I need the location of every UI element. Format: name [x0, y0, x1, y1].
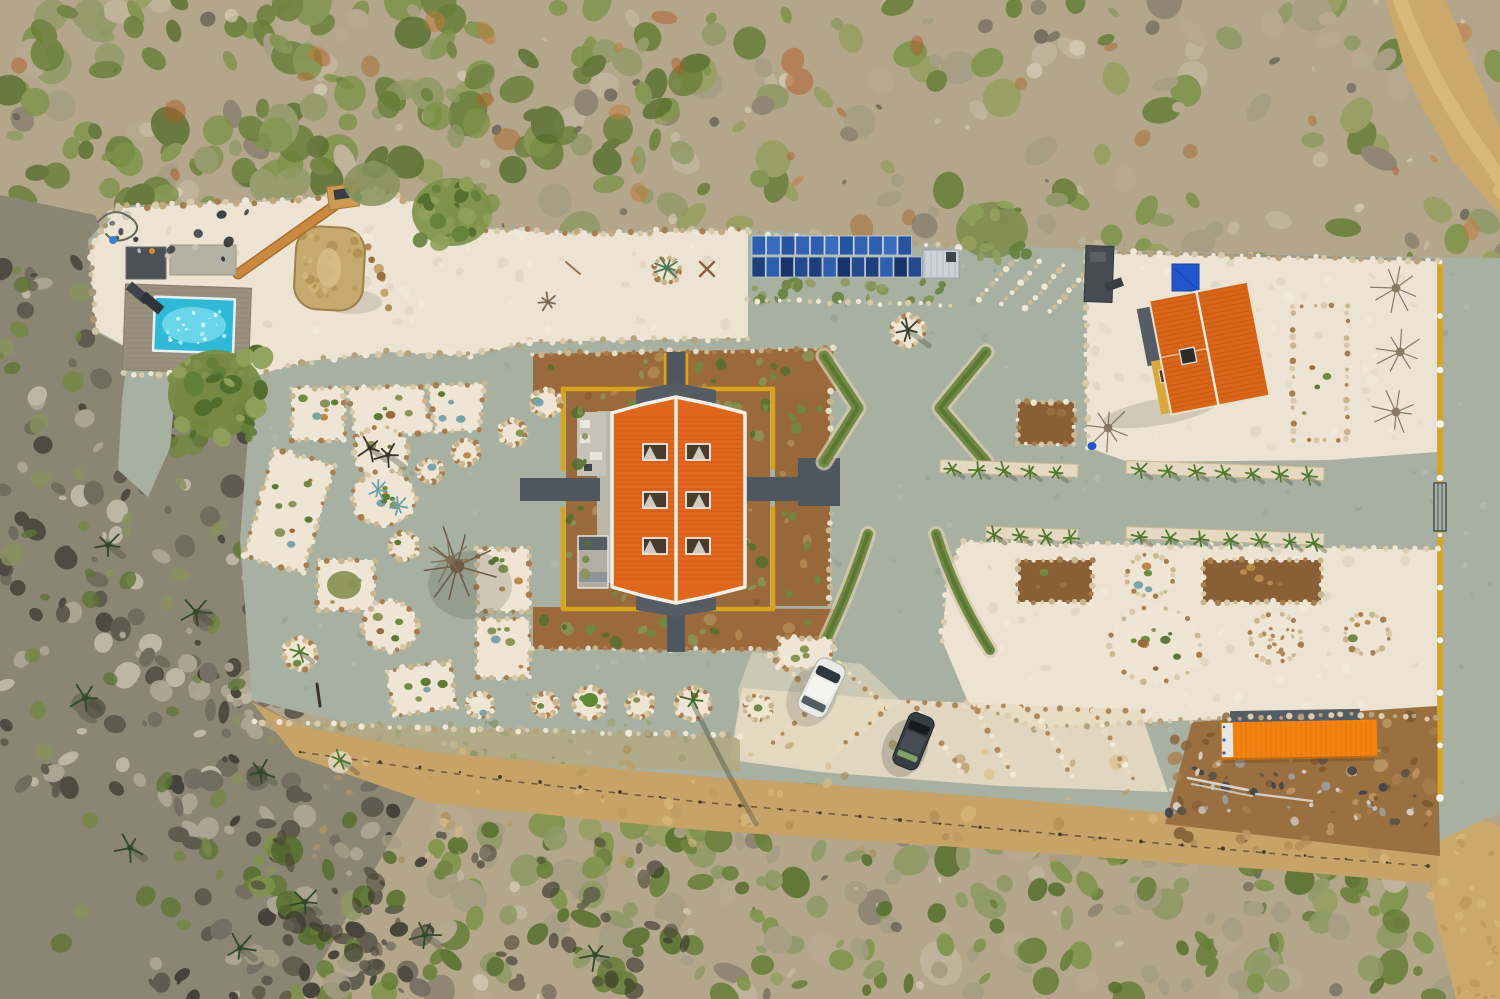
guest-house-skylight [1179, 347, 1197, 365]
walkway-west [520, 478, 600, 501]
walkway-east [740, 477, 802, 501]
olive-bush [327, 571, 361, 599]
patio-furniture-1 [580, 420, 590, 428]
orange-item [149, 248, 155, 254]
blue-bucket [1088, 442, 1097, 450]
garden-bed [424, 380, 487, 434]
patio-furniture-3 [590, 452, 602, 460]
tree-n2-canopy [344, 162, 400, 206]
guest-house-roof [1149, 282, 1269, 415]
casita-roof-dark [578, 536, 608, 550]
brown-bed-south1 [1014, 556, 1095, 605]
concrete-slab [170, 245, 236, 275]
garden-bed [474, 616, 533, 681]
gate-gap [1433, 482, 1447, 532]
villa-roof [612, 397, 745, 603]
solar-shed-unit [946, 252, 956, 262]
bed-bush-green [582, 693, 598, 707]
aerial-photo-scene [0, 0, 1500, 999]
equipment-shed [126, 247, 166, 279]
brown-bed-north [1015, 398, 1078, 447]
garden-circle [624, 689, 655, 720]
brown-bed-south2 [1200, 556, 1324, 606]
dark-container-items [1090, 252, 1106, 263]
aerial-photo [0, 0, 1500, 999]
storage-container [1221, 720, 1378, 761]
solar-array-row1 [752, 236, 912, 255]
palapa-crown [317, 248, 341, 288]
garden-bed [288, 385, 347, 444]
blue-pump [109, 236, 117, 244]
